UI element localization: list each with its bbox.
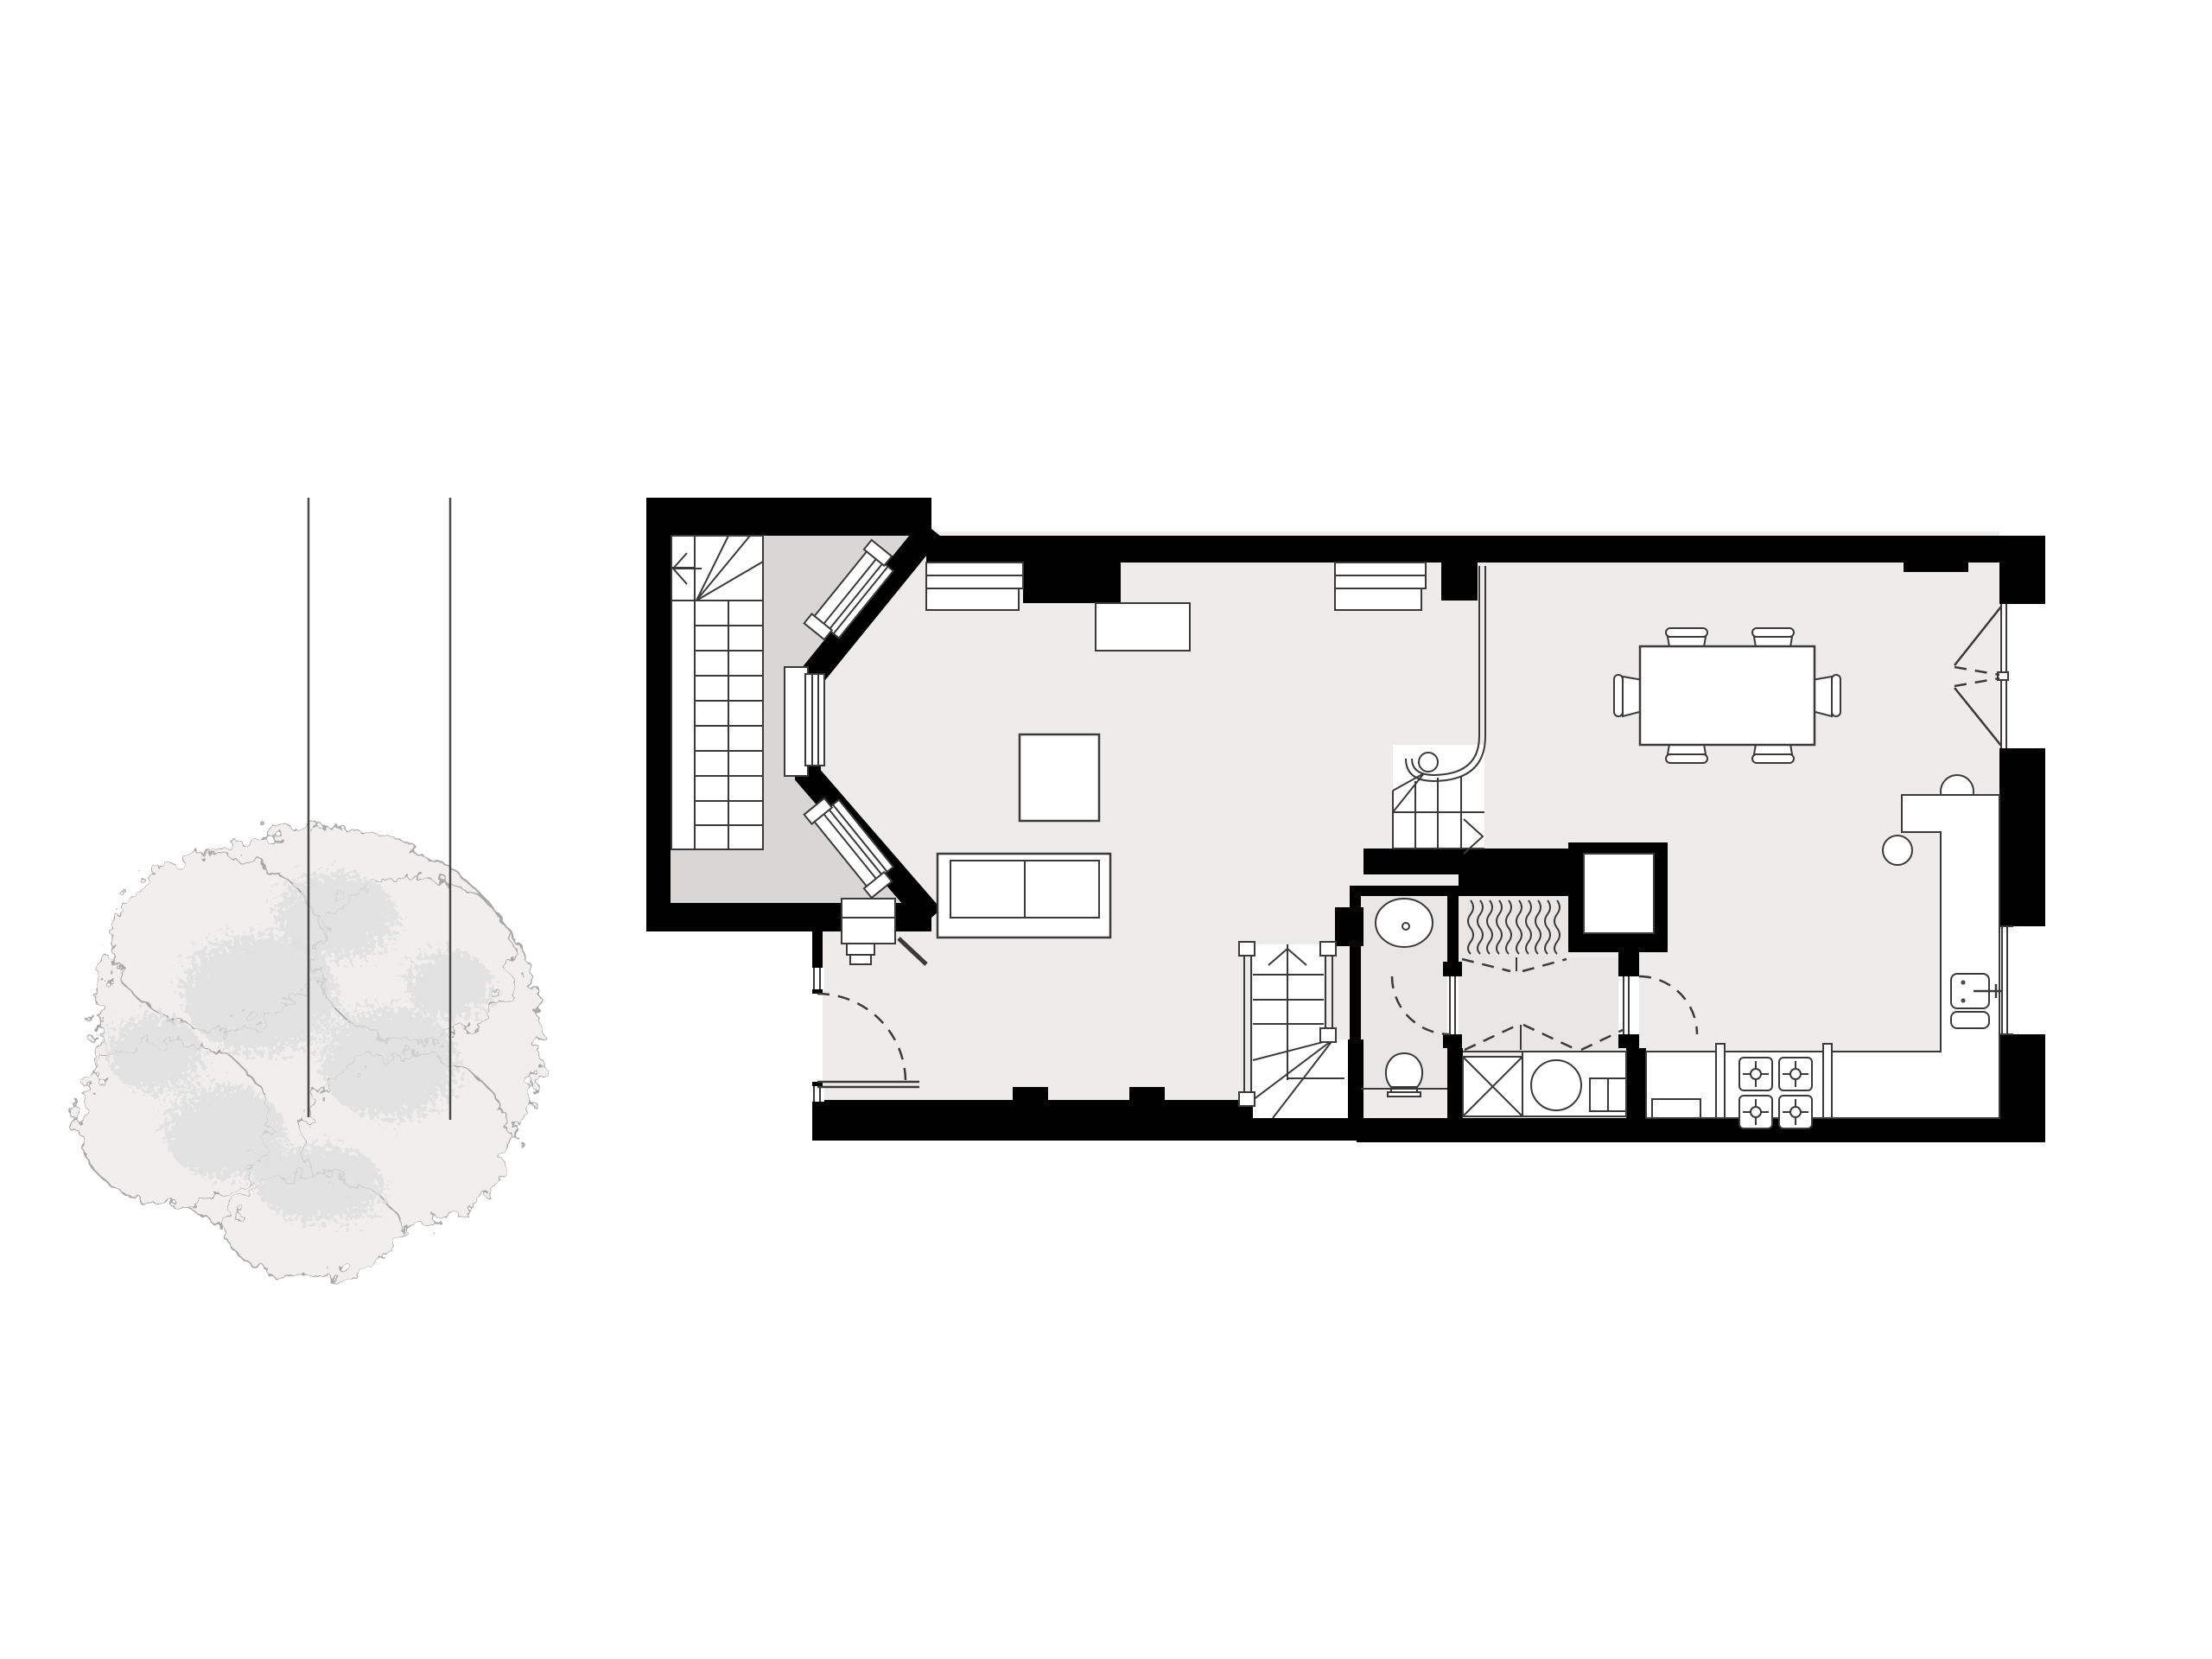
front-door-sidelight-upper [810, 968, 824, 989]
hall-stair [671, 536, 763, 849]
dining-table [1640, 646, 1815, 745]
wall-core-top-link [1490, 849, 1568, 874]
wall-front-corner [1999, 536, 2045, 604]
closet-floor [1459, 896, 1568, 957]
sofa [938, 854, 1110, 938]
wall-stairblock-bottom-a [646, 903, 843, 931]
jamb-wc-top [1443, 962, 1462, 976]
counter-post [1823, 1044, 1832, 1118]
wall-wc-left-chunk [1335, 907, 1363, 946]
wall-bottom-lump-2 [1129, 1087, 1165, 1100]
hob-burner [1779, 1096, 1812, 1128]
kitchen-side-window [1999, 926, 2045, 1034]
jamb-kitchen-bottom [1618, 1034, 1639, 1048]
wall-stairblock-left [646, 498, 671, 931]
wall-bottom-right [1357, 1118, 2045, 1142]
bar-stool [1883, 836, 1912, 865]
wall-core-top-wc [1350, 886, 1459, 896]
floor-plan-page [0, 0, 2212, 1659]
floor-plan-canvas [0, 0, 2212, 1659]
kitchen-counter-inner-rect [1652, 1099, 1700, 1118]
wall-bottom-lump-1 [1013, 1087, 1048, 1100]
wall-utility-left [1447, 1048, 1463, 1118]
jamb-wc-bottom [1443, 1034, 1462, 1048]
front-window-dining [1335, 563, 1426, 610]
wall-wc-left-lower [1348, 1039, 1363, 1102]
wall-stair-landing-band [1363, 849, 1490, 874]
hob-burner [1739, 1096, 1772, 1128]
dining-chair [1614, 675, 1643, 716]
site [78, 498, 541, 1279]
wall-wc-right-upper [1447, 896, 1459, 962]
hob-burner [1779, 1058, 1812, 1090]
dining-set [1614, 628, 1840, 763]
fireplace-hearth [1096, 603, 1190, 651]
shelf-box [1463, 1057, 1522, 1116]
wall-chimney-pier [1441, 536, 1478, 601]
wall-west-upper [812, 931, 823, 968]
understair-unit [1584, 854, 1654, 933]
dining-chair [1812, 675, 1840, 716]
basement-stair [1239, 942, 1348, 1118]
front-door-sidelight-lower [810, 1086, 824, 1102]
washing-machine [1522, 1052, 1626, 1116]
wall-front-pier-1 [1023, 536, 1121, 603]
toilet [1386, 1053, 1422, 1096]
front-window-living [926, 563, 1023, 610]
wall-stairblock-top [646, 498, 931, 536]
wall-core-top-closet [1459, 874, 1568, 896]
wall-front-pier-dining [1904, 556, 1968, 572]
wall-right-mid [1999, 748, 2045, 926]
coffee-table [1020, 734, 1099, 821]
wall-utility-right [1626, 1048, 1646, 1118]
jamb-kitchen-top [1618, 962, 1639, 976]
bay-window-middle [785, 667, 824, 776]
basin [1376, 899, 1433, 947]
hob-burner [1739, 1058, 1772, 1090]
counter-post [1716, 1044, 1725, 1118]
